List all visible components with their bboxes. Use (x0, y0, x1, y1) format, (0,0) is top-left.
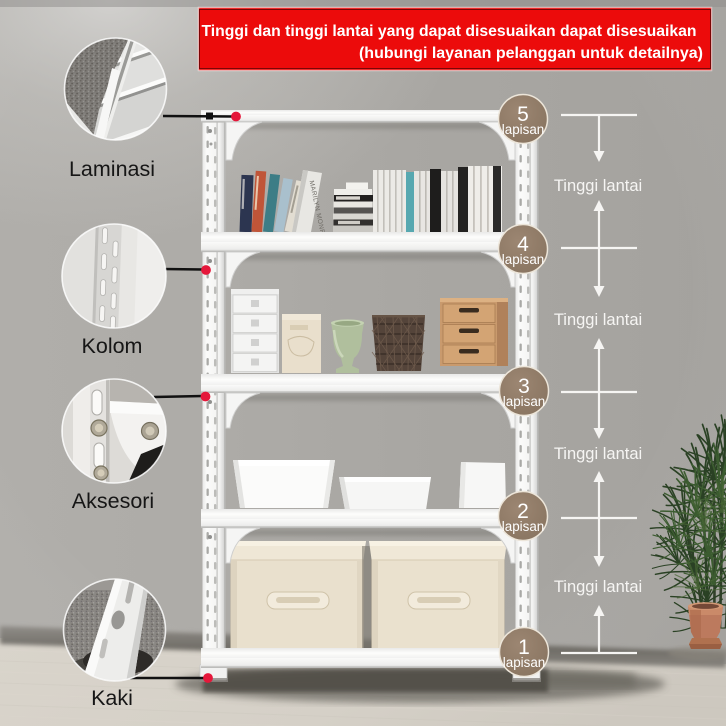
svg-text:Tinggi dan tinggi lantai yang: Tinggi dan tinggi lantai yang dapat dise… (201, 23, 696, 40)
svg-text:Laminasi: Laminasi (69, 157, 155, 181)
svg-text:(hubungi layanan pelanggan unt: (hubungi layanan pelanggan untuk detailn… (359, 45, 703, 62)
svg-text:Aksesori: Aksesori (72, 489, 154, 513)
svg-text:lapisan: lapisan (503, 394, 545, 409)
svg-text:lapisan: lapisan (503, 655, 545, 670)
svg-text:Tinggi lantai: Tinggi lantai (554, 177, 642, 195)
svg-text:Tinggi lantai: Tinggi lantai (554, 445, 642, 463)
svg-text:Tinggi lantai: Tinggi lantai (554, 311, 642, 329)
svg-text:Tinggi lantai: Tinggi lantai (554, 578, 642, 596)
svg-text:Kolom: Kolom (82, 334, 143, 358)
svg-text:lapisan: lapisan (502, 122, 544, 137)
svg-text:Kaki: Kaki (91, 686, 133, 710)
svg-text:lapisan: lapisan (502, 519, 544, 534)
svg-text:lapisan: lapisan (502, 252, 544, 267)
